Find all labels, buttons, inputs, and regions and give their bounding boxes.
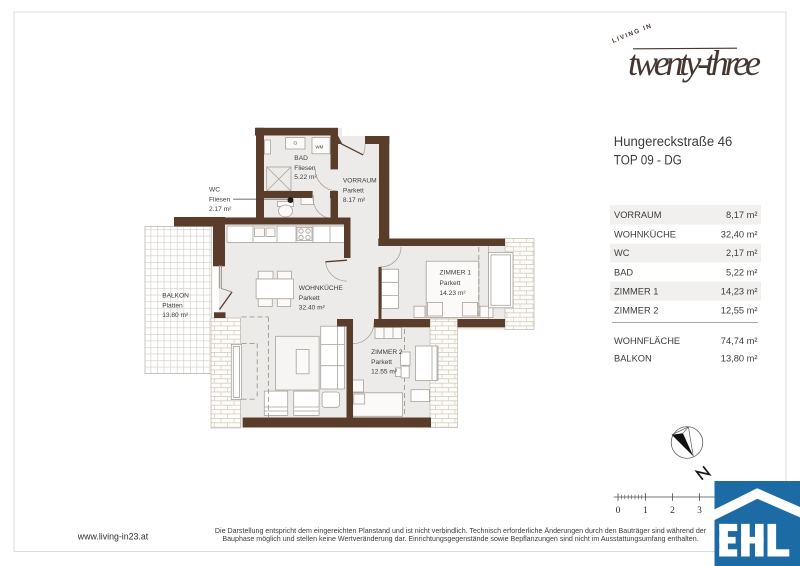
svg-text:Fliesen: Fliesen [294, 165, 316, 172]
svg-text:ZIMMER 1: ZIMMER 1 [440, 270, 472, 277]
svg-text:BALKON: BALKON [614, 353, 652, 363]
svg-text:Parkett: Parkett [371, 359, 392, 366]
svg-text:Platten: Platten [162, 302, 183, 309]
svg-text:WOHNKÜCHE: WOHNKÜCHE [614, 229, 676, 239]
svg-text:8,17 m²: 8,17 m² [726, 210, 758, 220]
svg-text:BAD: BAD [294, 155, 308, 162]
svg-text:5.22 m²: 5.22 m² [294, 174, 317, 181]
svg-text:Hungereckstraße 46: Hungereckstraße 46 [614, 134, 733, 149]
svg-text:Parkett: Parkett [299, 295, 320, 302]
svg-text:WM: WM [316, 145, 324, 150]
svg-text:13,80 m²: 13,80 m² [721, 353, 758, 363]
svg-text:14.23 m²: 14.23 m² [440, 290, 467, 297]
svg-text:Bauphase möglich und stellen k: Bauphase möglich und stellen keine Wertv… [222, 535, 698, 543]
svg-text:WOHNFLÄCHE: WOHNFLÄCHE [614, 336, 680, 346]
svg-text:13.80 m²: 13.80 m² [162, 312, 189, 319]
svg-text:TOP 09 - DG: TOP 09 - DG [614, 153, 682, 168]
svg-text:ZIMMER 1: ZIMMER 1 [614, 286, 658, 296]
svg-text:ZIMMER 2: ZIMMER 2 [614, 305, 658, 315]
svg-text:3: 3 [697, 506, 702, 516]
svg-text:BALKON: BALKON [162, 292, 189, 299]
svg-text:2,17 m²: 2,17 m² [726, 248, 758, 258]
svg-text:VORRAUM: VORRAUM [614, 210, 662, 220]
svg-text:BAD: BAD [614, 267, 633, 277]
svg-text:WC: WC [209, 186, 220, 193]
svg-text:12.55 m²: 12.55 m² [371, 369, 398, 376]
svg-text:8.17 m²: 8.17 m² [343, 197, 366, 204]
svg-text:0: 0 [616, 506, 621, 516]
svg-text:32,40 m²: 32,40 m² [721, 229, 758, 239]
svg-text:2: 2 [670, 506, 675, 516]
svg-text:Parkett: Parkett [343, 187, 364, 194]
svg-text:1: 1 [643, 506, 648, 516]
svg-text:12,55 m²: 12,55 m² [721, 305, 758, 315]
svg-text:WOHNKÜCHE: WOHNKÜCHE [299, 284, 344, 292]
svg-text:WC: WC [614, 248, 630, 258]
svg-text:Parkett: Parkett [440, 280, 461, 287]
svg-text:VORRAUM: VORRAUM [343, 178, 377, 185]
svg-text:14,23 m²: 14,23 m² [721, 286, 758, 296]
svg-text:2.17 m²: 2.17 m² [209, 206, 232, 213]
svg-text:5,22 m²: 5,22 m² [726, 267, 758, 277]
svg-text:32.40 m²: 32.40 m² [299, 304, 326, 311]
svg-text:Die Darstellung entspricht dem: Die Darstellung entspricht dem eingereic… [215, 527, 707, 535]
svg-text:www.living-in23.at: www.living-in23.at [77, 532, 149, 542]
svg-text:Fliesen: Fliesen [209, 196, 231, 203]
svg-text:ZIMMER 2: ZIMMER 2 [371, 349, 403, 356]
svg-text:74,74 m²: 74,74 m² [721, 336, 758, 346]
